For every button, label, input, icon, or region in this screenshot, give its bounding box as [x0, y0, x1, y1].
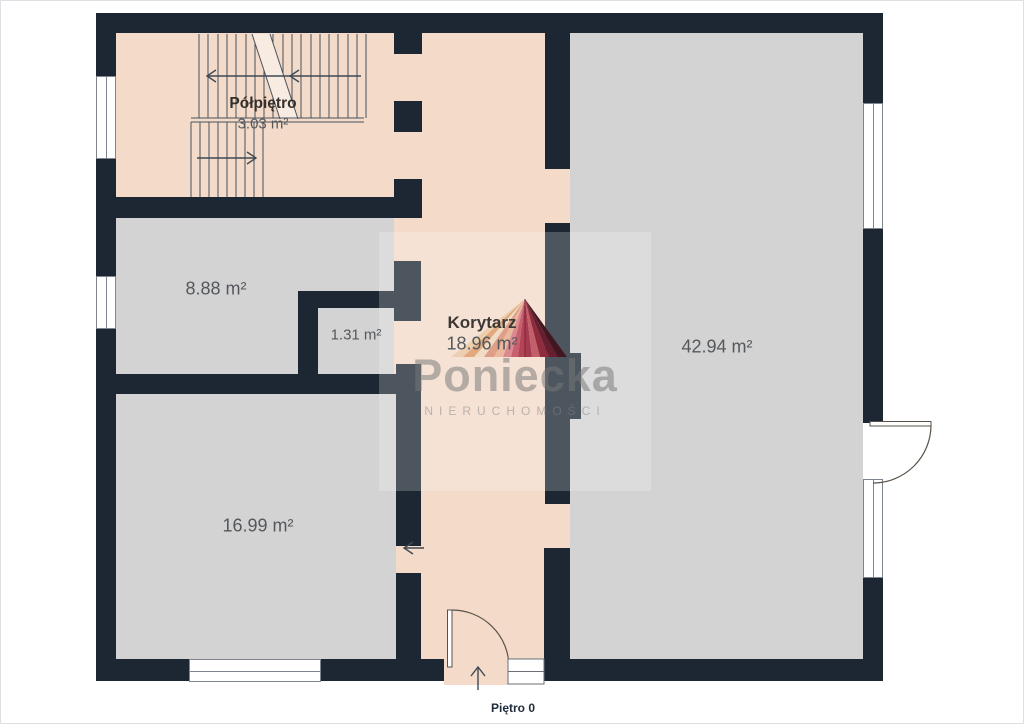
wall-outer-top [96, 13, 883, 33]
wall-outer-bottom-right [544, 659, 883, 681]
wall-corridor-left-pier1 [394, 101, 422, 132]
room-polpietro-floor [116, 33, 545, 197]
entrance-threshold [444, 659, 508, 685]
brand-name: Poniecka [379, 350, 651, 402]
room-area-1699: 16.99 m² [222, 516, 293, 537]
room-area-polpietro: 3.03 m² [238, 116, 289, 133]
window-mullion [106, 77, 107, 158]
room-area-korytarz: 18.96 m² [446, 334, 517, 355]
window-bottom [189, 659, 321, 682]
wall-rooms-divider [96, 374, 421, 394]
watermark: Poniecka NIERUCHOMOŚCI [379, 232, 651, 491]
window-mullion [873, 480, 874, 577]
wall-wc-left [298, 291, 318, 374]
room-area-131: 1.31 m² [331, 327, 382, 344]
wall-corridor-right-lower [544, 548, 570, 681]
window-mullion [106, 277, 107, 328]
window-right-upper [863, 103, 883, 229]
wall-corridor-right-upper [545, 33, 570, 169]
wall-stairs-divider [116, 197, 422, 218]
side-door [870, 422, 931, 484]
room-area-888: 8.88 m² [185, 279, 246, 300]
brand-tagline: NIERUCHOMOŚCI [379, 404, 651, 418]
room-label-korytarz: Korytarz [448, 313, 517, 333]
room-label-polpietro: Półpiętro [229, 95, 296, 113]
floor-label: Piętro 0 [491, 701, 535, 715]
window-left-lower [96, 276, 116, 329]
room-area-4294: 42.94 m² [681, 337, 752, 358]
floorplan-canvas: Poniecka NIERUCHOMOŚCI Półpiętro 3.03 m²… [0, 0, 1024, 724]
wall-corridor-left-pier2 [394, 179, 422, 218]
corridor-opening-upper [545, 169, 570, 223]
wall-corridor-left-stub1 [394, 33, 422, 54]
window-mullion [873, 104, 874, 228]
entrance-steps [508, 659, 544, 684]
window-mullion [190, 671, 320, 672]
window-left-upper [96, 76, 116, 159]
corridor-opening-lower [545, 504, 570, 548]
wall-corridor-left-low [396, 573, 421, 659]
window-right-lower [863, 479, 883, 578]
